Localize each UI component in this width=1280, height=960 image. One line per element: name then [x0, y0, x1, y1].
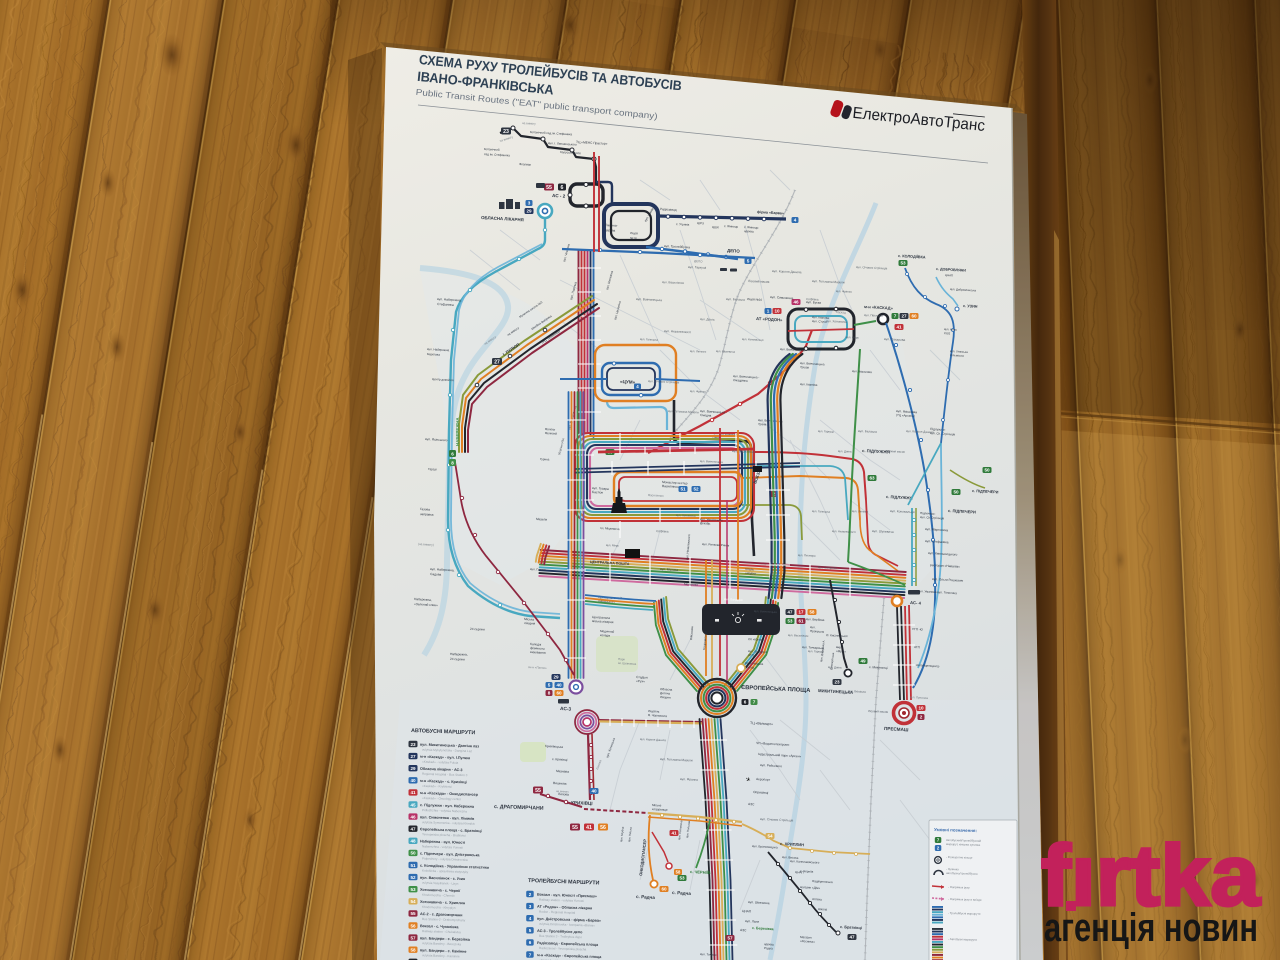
svg-text:27: 27 — [494, 359, 500, 365]
svg-text:Аеропорт: Аеропорт — [756, 777, 771, 782]
svg-text:41: 41 — [671, 831, 677, 836]
svg-text:вул. Галицька: вул. Галицька — [640, 337, 659, 342]
svg-text:4: 4 — [794, 218, 797, 223]
svg-text:48: 48 — [410, 839, 416, 844]
svg-text:СШ2: СШ2 — [944, 331, 951, 335]
svg-text:Бастіон: Бастіон — [592, 490, 604, 495]
svg-text:23: 23 — [503, 129, 509, 135]
svg-text:АС - 2: АС - 2 — [552, 193, 566, 199]
svg-text:60: 60 — [661, 887, 667, 892]
svg-text:53: 53 — [679, 876, 685, 881]
svg-text:Ліцей: Ліцей — [630, 231, 638, 235]
svg-text:Прокушля: Прокушля — [810, 629, 825, 634]
svg-text:29: 29 — [410, 766, 416, 771]
svg-text:4: 4 — [529, 916, 532, 921]
svg-text:7: 7 — [529, 952, 532, 957]
svg-text:46: 46 — [793, 300, 799, 305]
svg-text:45: 45 — [410, 802, 416, 807]
svg-text:- Розворотне кільце: - Розворотне кільце — [946, 855, 973, 860]
svg-text:Тршав: Тршав — [800, 365, 810, 370]
svg-text:61: 61 — [799, 619, 804, 624]
svg-text:7: 7 — [894, 314, 897, 319]
svg-text:55: 55 — [535, 788, 541, 794]
svg-text:Софіївка: Софіївка — [656, 529, 669, 534]
svg-text:10: 10 — [918, 706, 924, 711]
svg-text:«Надія»: «Надія» — [745, 571, 757, 576]
svg-text:6: 6 — [529, 940, 532, 945]
svg-text:«Рух»: «Рух» — [636, 679, 645, 684]
svg-text:с. Угринів: с. Угринів — [676, 222, 690, 227]
svg-text:вул. Гаркуші: вул. Гаркуші — [688, 265, 707, 270]
svg-text:«Мрія»: «Мрія» — [836, 649, 846, 654]
svg-text:23: 23 — [834, 680, 840, 685]
svg-text:27: 27 — [901, 314, 907, 319]
svg-text:1: 1 — [767, 309, 770, 314]
svg-text:заправка: заправка — [420, 512, 434, 517]
svg-text:Набережна,: Набережна, — [450, 652, 468, 657]
svg-text:23: 23 — [410, 742, 416, 747]
svg-text:вул. Франка: вул. Франка — [690, 389, 706, 394]
svg-text:5: 5 — [529, 928, 532, 933]
svg-text:вул. Лепкого: вул. Лепкого — [690, 349, 707, 354]
svg-text:АТП: АТП — [914, 645, 920, 649]
svg-text:ЦНАП: ЦНАП — [945, 273, 953, 277]
svg-text:58: 58 — [410, 948, 416, 953]
svg-text:53: 53 — [788, 619, 793, 624]
svg-text:6: 6 — [561, 185, 564, 191]
svg-text:на вимогу: на вимогу — [522, 121, 536, 126]
svg-text:вул. Лєни: вул. Лєни — [745, 919, 759, 924]
svg-text:47: 47 — [410, 827, 416, 832]
svg-text:50: 50 — [410, 851, 416, 856]
svg-text:с. УЗИН: с. УЗИН — [963, 304, 978, 309]
svg-text:10: 10 — [774, 309, 780, 314]
svg-text:5: 5 — [747, 259, 750, 264]
svg-text:8: 8 — [548, 691, 551, 696]
svg-text:автобусна/тролейбусна: автобусна/тролейбусна — [946, 871, 978, 876]
svg-text:29: 29 — [526, 209, 532, 214]
svg-text:лікарня: лікарня — [524, 621, 536, 626]
svg-text:Гаразі: Гаразі — [428, 467, 437, 471]
svg-text:Радна: Радна — [764, 946, 773, 950]
svg-text:57: 57 — [727, 936, 733, 941]
svg-text:коледж: коледж — [600, 633, 610, 638]
svg-text:ЦНАП: ЦНАП — [742, 909, 752, 914]
svg-text:Мазнава: Мазнава — [556, 769, 569, 774]
svg-text:Каскад: Каскад — [836, 310, 846, 315]
svg-text:24 серпня: 24 серпня — [470, 627, 485, 632]
svg-text:Транв: Транв — [758, 422, 767, 426]
svg-text:49: 49 — [860, 659, 866, 664]
svg-text:вул. Лепкого: вул. Лепкого — [852, 509, 869, 514]
svg-text:НАБЕРЕЖНА: НАБЕРЕЖНА — [455, 417, 460, 446]
svg-text:ЦШК: ЦШК — [712, 225, 719, 229]
svg-text:Мельника: Мельника — [684, 582, 698, 587]
svg-text:24 серпня: 24 серпня — [450, 657, 465, 662]
svg-text:53: 53 — [900, 261, 906, 266]
svg-text:3: 3 — [528, 201, 531, 206]
svg-text:Мазепи: Мазепи — [536, 517, 548, 522]
svg-text:вул. Франка: вул. Франка — [680, 777, 698, 782]
svg-text:63: 63 — [869, 476, 875, 481]
svg-text:17: 17 — [799, 610, 804, 615]
svg-text:Садова: Садова — [430, 572, 442, 577]
svg-text:с. Ямниця: с. Ямниця — [724, 224, 739, 229]
svg-text:«ЦУМ»: «ЦУМ» — [620, 379, 636, 385]
svg-text:41: 41 — [896, 325, 902, 330]
svg-text:Декабр.: Декабр. — [700, 521, 711, 526]
svg-text:60: 60 — [911, 314, 917, 319]
svg-text:60: 60 — [556, 691, 562, 696]
svg-text:УТП -Ю: УТП -Ю — [912, 627, 923, 632]
svg-text:вул. Стуса: вул. Стуса — [812, 319, 827, 324]
svg-text:55: 55 — [546, 185, 552, 191]
svg-text:ЦІР3: ЦІР3 — [697, 221, 704, 225]
svg-text:АЗС: АЗС — [740, 928, 747, 932]
svg-text:55: 55 — [410, 911, 416, 916]
svg-text:29: 29 — [553, 675, 559, 680]
svg-text:вул. Петлюри: вул. Петлюри — [798, 553, 816, 558]
svg-text:вул. Довга: вул. Довга — [700, 317, 715, 322]
svg-text:ДЕПО: ДЕПО — [694, 259, 703, 264]
svg-text:вул. Галицька: вул. Галицька — [812, 509, 831, 514]
svg-text:41: 41 — [410, 790, 416, 795]
svg-text:5: 5 — [548, 683, 551, 688]
svg-text:АЗС: АЗС — [748, 802, 755, 806]
svg-text:АС-3: АС-3 — [560, 706, 572, 713]
svg-text:6: 6 — [744, 700, 747, 705]
svg-text:на вимогу: на вимогу — [556, 789, 570, 794]
svg-text:41: 41 — [586, 825, 592, 831]
svg-text:церква: церква — [744, 229, 754, 234]
svg-text:вул. Довга: вул. Довга — [828, 665, 842, 670]
svg-text:вул. Франка: вул. Франка — [836, 289, 852, 294]
svg-text:агенція новин: агенція новин — [1044, 906, 1258, 950]
svg-text:47: 47 — [849, 935, 855, 940]
svg-text:вул. Довга: вул. Довга — [838, 449, 852, 454]
svg-text:Софіївка: Софіївка — [806, 297, 819, 302]
svg-text:56: 56 — [410, 923, 416, 928]
svg-text:54: 54 — [410, 899, 416, 904]
svg-text:50: 50 — [953, 490, 959, 495]
svg-text:54: 54 — [767, 834, 773, 839]
svg-text:7: 7 — [753, 700, 756, 705]
svg-text:53: 53 — [410, 887, 416, 892]
svg-text:56: 56 — [600, 825, 606, 831]
svg-text:Сільмісько: Сільмісько — [950, 353, 965, 358]
svg-text:АТП: АТП — [748, 653, 754, 657]
svg-text:Лікарня: Лікарня — [660, 695, 671, 700]
svg-text:46: 46 — [410, 814, 416, 819]
svg-text:52: 52 — [410, 875, 416, 880]
svg-text:Аптека: Аптека — [812, 897, 822, 902]
svg-text:27: 27 — [410, 754, 416, 759]
svg-text:Школа: Школа — [818, 907, 828, 912]
svg-text:2: 2 — [529, 892, 532, 897]
svg-text:58: 58 — [810, 610, 815, 615]
svg-text:- Автобусні маршрути: - Автобусні маршрути — [948, 937, 978, 942]
svg-text:Берегова: Берегова — [427, 352, 440, 357]
svg-text:вул. Гаркуші: вул. Гаркуші — [818, 429, 834, 434]
svg-text:6: 6 — [451, 451, 454, 456]
svg-text:вул. Миру: вул. Миру — [846, 335, 860, 340]
svg-text:- Напрямок руху: - Напрямок руху — [948, 885, 970, 890]
svg-text:ЦНАП: ЦНАП — [795, 870, 804, 874]
svg-text:АС- 4: АС- 4 — [910, 600, 922, 606]
svg-text:40: 40 — [556, 683, 562, 688]
svg-text:вул. Белзька: вул. Белзька — [848, 689, 866, 694]
svg-text:50: 50 — [984, 468, 990, 473]
svg-text:2: 2 — [920, 715, 923, 720]
svg-text:Флагман: Флагман — [519, 162, 532, 167]
svg-text:52: 52 — [693, 487, 699, 492]
svg-text:51: 51 — [680, 487, 686, 492]
svg-text:57: 57 — [410, 935, 416, 940]
svg-text:Велионй: Велионй — [545, 431, 558, 436]
svg-text:Гурика: Гурика — [540, 457, 550, 462]
svg-text:55: 55 — [572, 825, 578, 831]
svg-text:Газова: Газова — [420, 507, 430, 512]
svg-text:вул. Гаркуші: вул. Гаркуші — [808, 649, 824, 654]
svg-text:51: 51 — [410, 863, 416, 868]
svg-text:Смодна: Смодна — [700, 413, 712, 418]
svg-text:3: 3 — [529, 904, 532, 909]
svg-text:47: 47 — [788, 610, 793, 615]
svg-text:вул. Миру: вул. Миру — [606, 543, 620, 548]
svg-text:58: 58 — [676, 870, 681, 875]
svg-text:«Росинка»: «Росинка» — [800, 939, 815, 944]
svg-text:40: 40 — [410, 778, 416, 783]
svg-text:8: 8 — [451, 460, 454, 465]
svg-text:Смадрівка: Смадрівка — [733, 378, 748, 383]
svg-text:ДЕПО: ДЕПО — [727, 248, 740, 254]
svg-text:40: 40 — [591, 789, 597, 794]
svg-text:Вишнева: Вишнева — [553, 781, 567, 786]
svg-text:площа: площа — [745, 665, 755, 670]
